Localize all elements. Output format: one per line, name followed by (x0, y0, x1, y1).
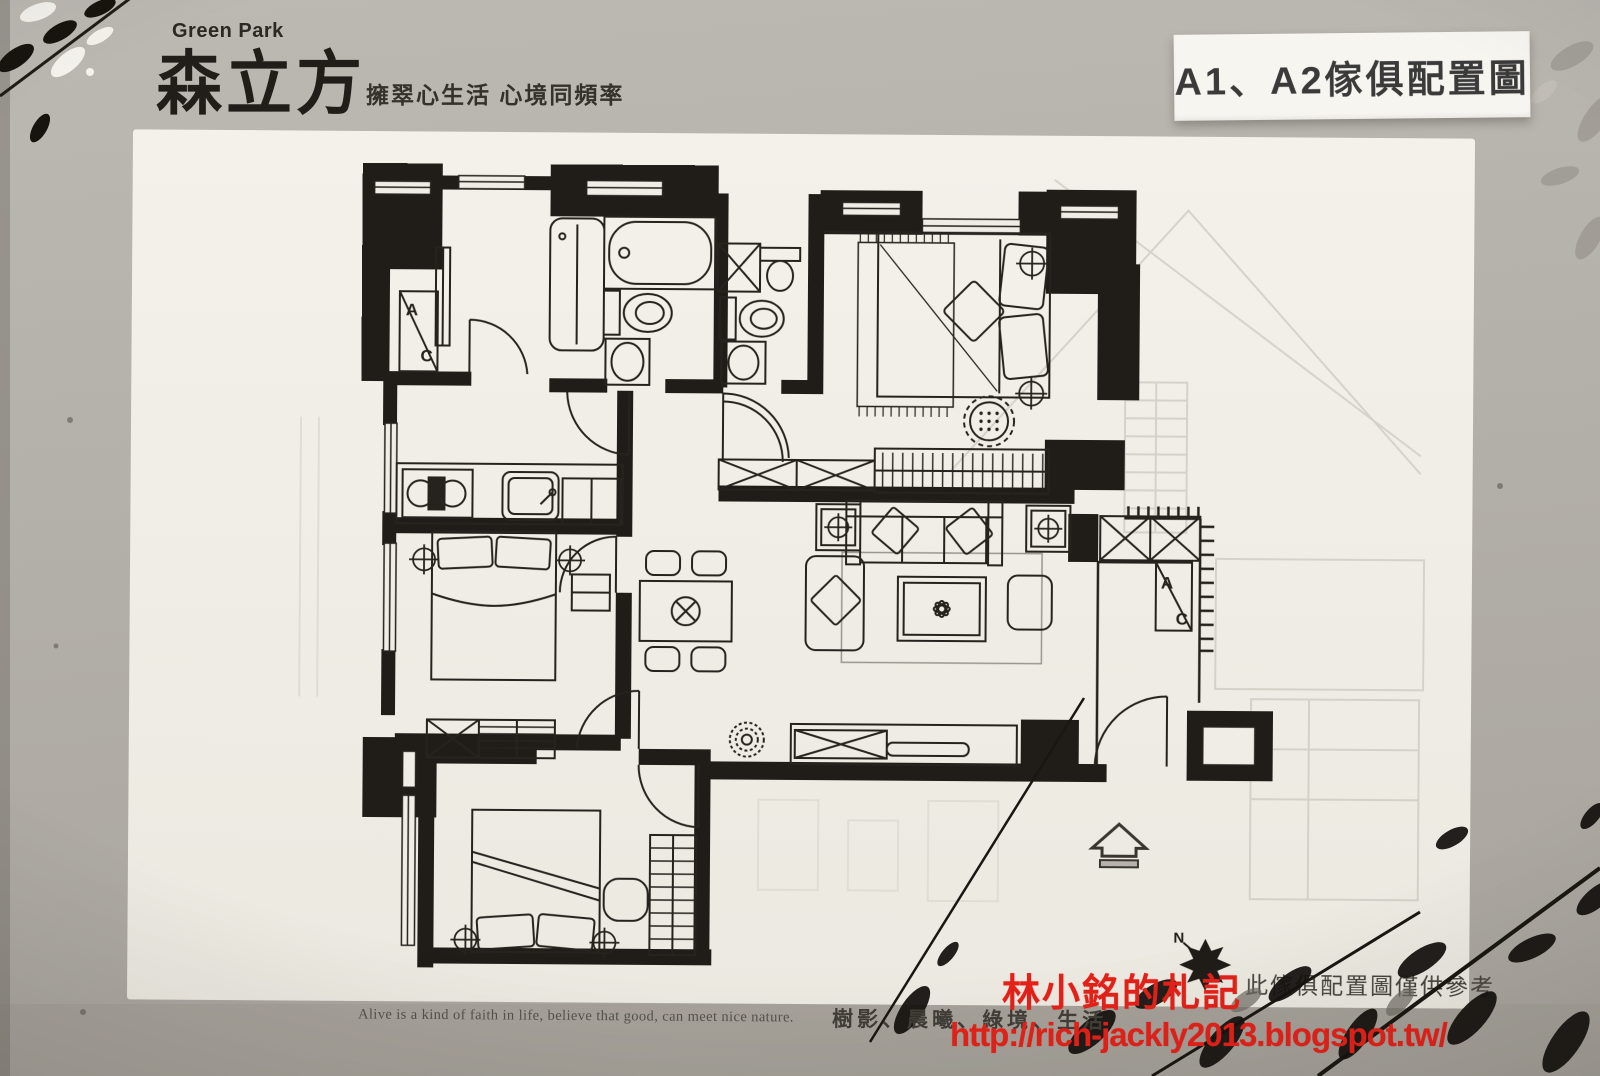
ac-c-label: C (1176, 610, 1188, 629)
ac-a-label: A (406, 300, 418, 319)
leaf-decor-top-left (0, 0, 136, 145)
watermark-blog-name: 林小銘的札記 (1002, 962, 1242, 1017)
compass-n-label: N (1173, 930, 1184, 947)
brand-logo-zh: 森立方 (156, 28, 366, 129)
plan-type-badge-label: A1、A2傢俱配置圖 (1174, 47, 1530, 106)
plan-sheet: N A C A C 此傢俱配置圖僅供參考 (127, 129, 1501, 1009)
photo-left-edge (0, 0, 10, 1076)
floor-plan-scene: N A C A C 此傢俱配置圖僅供參考 (0, 0, 1600, 1076)
ac-a-label: A (1161, 574, 1173, 593)
footer-slogan-en: Alive is a kind of faith in life, believ… (358, 1006, 794, 1026)
ac-c-label: C (420, 346, 432, 365)
plan-type-badge: A1、A2傢俱配置圖 (1174, 31, 1531, 121)
brand-tagline: 擁翠心生活 心境同頻率 (366, 76, 624, 110)
watermark-blog-url[interactable]: http://rich-jackly2013.blogspot.tw/ (950, 1016, 1447, 1054)
brochure-photo: N A C A C 此傢俱配置圖僅供參考 (0, 0, 1600, 1076)
